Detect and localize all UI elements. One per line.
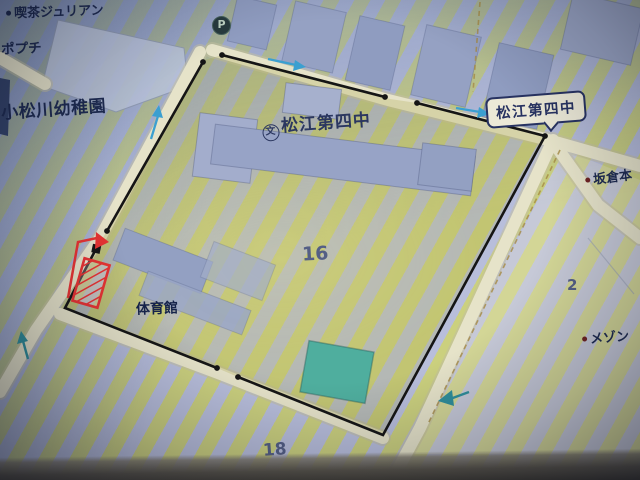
poi-school-label: 文松江第四中 — [261, 105, 372, 142]
parcel-number-2: 2 — [567, 276, 577, 294]
poi-cafe-text: 喫茶ジュリアン — [14, 3, 104, 21]
poi-dot-icon — [585, 177, 591, 183]
poi-school-text: 松江第四中 — [280, 110, 371, 136]
poi-dot-icon — [6, 11, 11, 16]
poi-maison-label: メゾン — [581, 325, 629, 347]
school-sign-text: 松江第四中 — [496, 100, 577, 122]
poi-gym-label: 体育館 — [136, 297, 179, 318]
poi-maison-text: メゾン — [590, 329, 630, 347]
poi-sakakura-text: 坂倉本 — [592, 168, 633, 188]
map-photo: 喫茶ジュリアン ポプチ 小松川幼稚園 文松江第四中 坂倉本 2 メゾン 16 体… — [0, 0, 640, 480]
parcel-number-16: 16 — [301, 242, 329, 265]
poi-gym-text: 体育館 — [136, 300, 179, 317]
school-sign-box: 松江第四中 — [485, 90, 587, 129]
poi-cafe-label: 喫茶ジュリアン — [6, 0, 104, 22]
school-symbol-glyph: 文 — [265, 126, 277, 138]
map-labels: 喫茶ジュリアン ポプチ 小松川幼稚園 文松江第四中 坂倉本 2 メゾン 16 体… — [0, 0, 640, 480]
poi-sakakura-label: 坂倉本 — [584, 164, 633, 189]
poi-dot-icon — [582, 336, 587, 341]
poi-popuchi-label: ポプチ — [2, 36, 42, 57]
poi-kindergarten-text: 小松川幼稚園 — [1, 96, 107, 123]
poi-popuchi-text: ポプチ — [1, 40, 42, 57]
parking-icon: P — [212, 16, 231, 35]
parking-glyph: P — [217, 18, 225, 31]
poi-kindergarten-label: 小松川幼稚園 — [0, 91, 106, 123]
school-symbol-icon: 文 — [262, 124, 280, 142]
